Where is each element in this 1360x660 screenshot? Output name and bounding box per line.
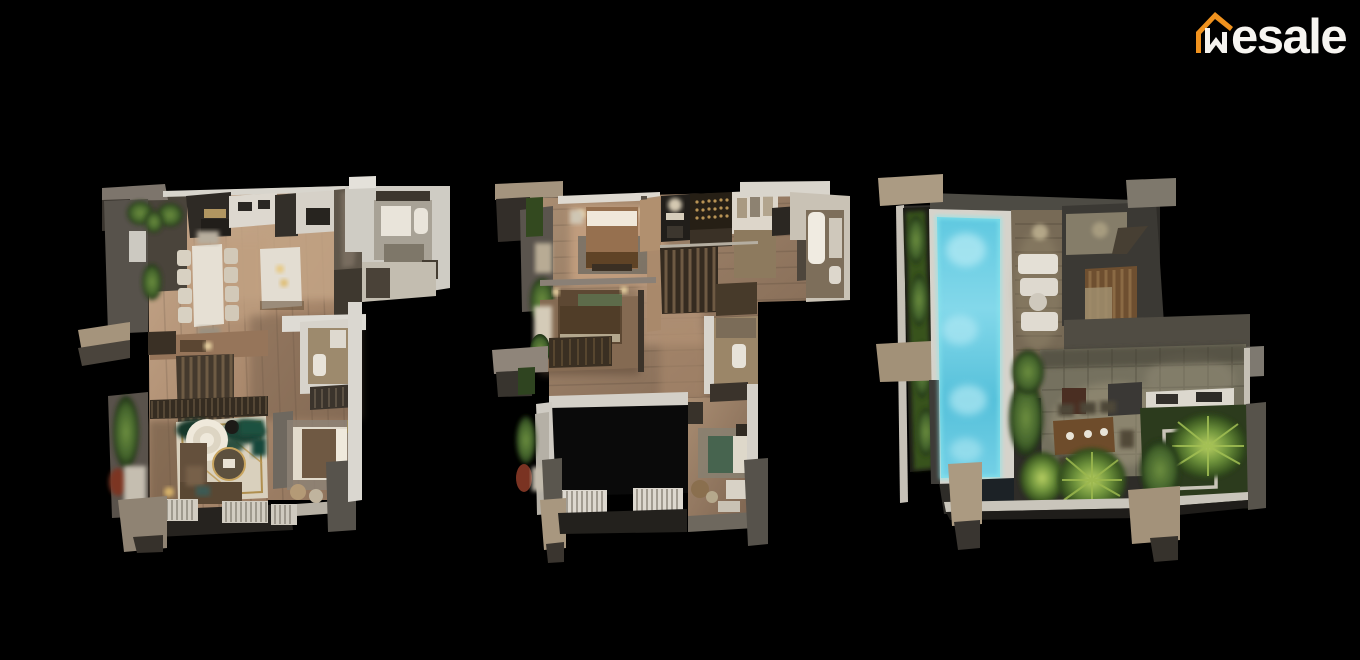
svg-text:esale: esale [1231,10,1346,64]
